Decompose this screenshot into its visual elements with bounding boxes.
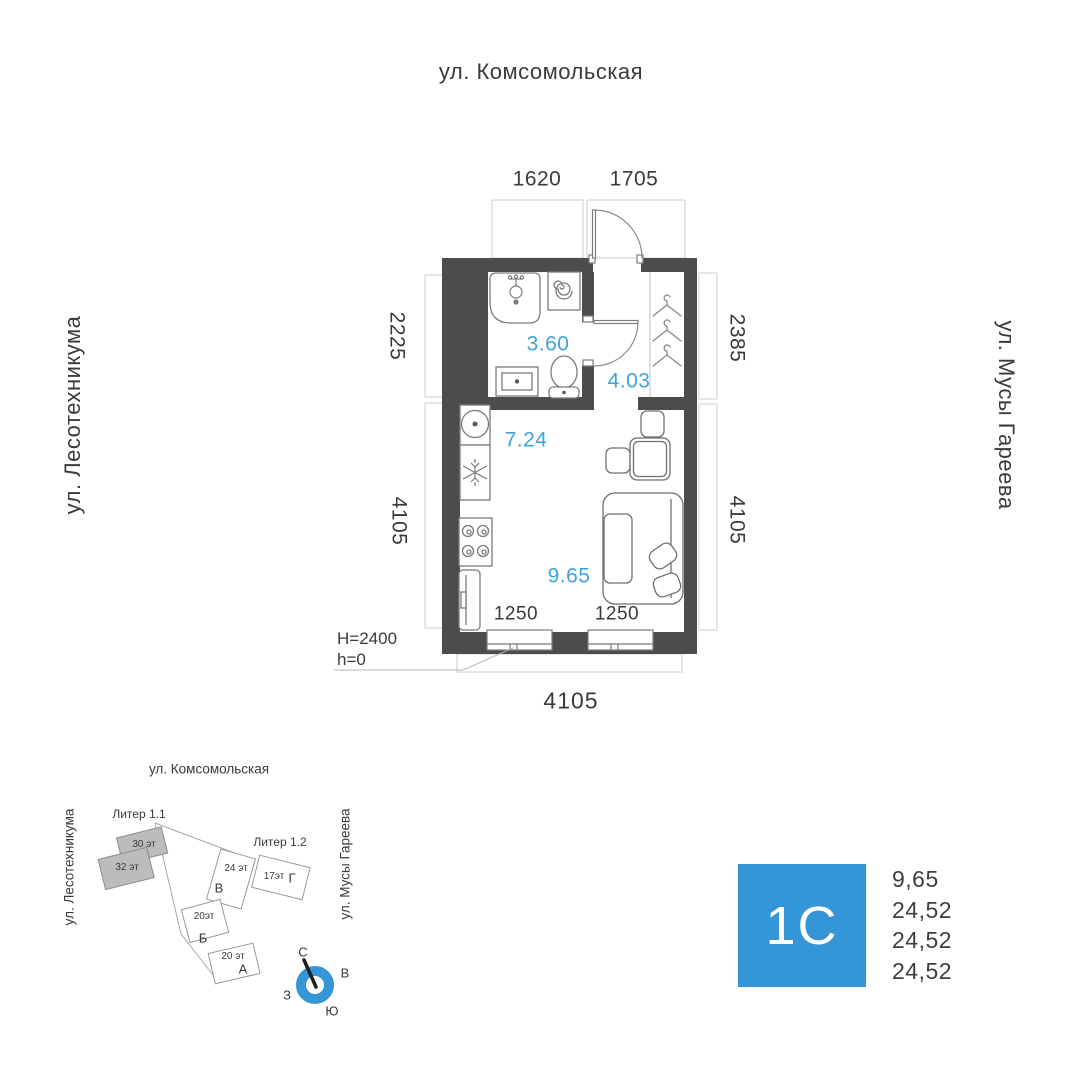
chair-top bbox=[641, 411, 664, 437]
building-g-letter: Г bbox=[288, 872, 295, 885]
compass-north-label: С bbox=[298, 946, 307, 959]
sitemap-street-right: ул. Мусы Гареева bbox=[338, 808, 352, 919]
unit-total-area-1: 24,52 bbox=[892, 895, 952, 926]
note-floor-level: h=0 bbox=[337, 651, 366, 668]
sofa bbox=[603, 493, 683, 604]
sitemap-buildings bbox=[98, 827, 310, 984]
toilet bbox=[549, 356, 579, 398]
compass-south-label: Ю bbox=[325, 1005, 338, 1018]
shower-tray bbox=[490, 273, 540, 323]
sitemap-liter-2: Литер 1.2 bbox=[253, 836, 306, 848]
window-2 bbox=[588, 630, 653, 650]
building-a-floors: 20 эт bbox=[221, 952, 244, 962]
dim-right-1: 2385 bbox=[727, 314, 748, 363]
unit-total-area-2: 24,52 bbox=[892, 925, 952, 956]
dim-left-2: 4105 bbox=[389, 497, 410, 546]
dim-right-2: 4105 bbox=[727, 496, 748, 545]
sitemap-street-top: ул. Комсомольская bbox=[149, 762, 269, 776]
compass-east-label: В bbox=[341, 967, 350, 980]
dining-table bbox=[606, 411, 670, 480]
compass-west-label: З bbox=[283, 989, 291, 1002]
area-kitchen: 7.24 bbox=[505, 430, 548, 451]
area-hallway: 4.03 bbox=[608, 371, 651, 392]
building-v bbox=[207, 849, 256, 909]
chair-left bbox=[606, 448, 630, 473]
unit-total-area-3: 24,52 bbox=[892, 956, 952, 987]
vanity-sink bbox=[496, 367, 538, 396]
dim-top-1: 1620 bbox=[513, 169, 562, 190]
sitemap-street-left: ул. Лесотехникума bbox=[62, 809, 76, 926]
street-label-right: ул. Мусы Гареева bbox=[995, 320, 1017, 509]
dim-top-2: 1705 bbox=[610, 169, 659, 190]
area-living: 9.65 bbox=[548, 566, 591, 587]
area-bathroom: 3.60 bbox=[527, 334, 570, 355]
building-v-floors: 24 эт bbox=[224, 864, 247, 874]
building-a-letter: А bbox=[239, 963, 248, 976]
street-label-top: ул. Комсомольская bbox=[439, 61, 643, 83]
sitemap-liter-1: Литер 1.1 bbox=[112, 808, 165, 820]
washing-machine bbox=[548, 272, 580, 310]
building-v-letter: В bbox=[215, 882, 224, 895]
kitchen-sink bbox=[460, 405, 490, 445]
hanger-icons bbox=[653, 295, 681, 366]
building-a bbox=[208, 943, 260, 984]
floor-plan-page: ул. Комсомольская ул. Лесотехникума ул. … bbox=[0, 0, 1080, 1080]
kitchen-cabinet bbox=[459, 570, 480, 630]
building-g-floors: 17эт bbox=[264, 872, 285, 882]
dim-left-1: 2225 bbox=[387, 312, 408, 361]
unit-type-badge: 1С bbox=[738, 864, 866, 987]
unit-type-label: 1С bbox=[765, 895, 838, 957]
dim-window-1: 1250 bbox=[494, 605, 538, 624]
dim-bottom: 4105 bbox=[543, 690, 598, 713]
entrance-door bbox=[589, 210, 643, 263]
compass-icon bbox=[301, 960, 329, 999]
window-1 bbox=[487, 630, 552, 650]
building-b-floors: 20эт bbox=[194, 912, 215, 922]
building-32-floors: 32 эт bbox=[115, 863, 138, 873]
street-label-left: ул. Лесотехникума bbox=[62, 316, 84, 515]
unit-area-values: 9,65 24,52 24,52 24,52 bbox=[892, 864, 952, 986]
dim-window-2: 1250 bbox=[595, 605, 639, 624]
note-ceiling-height: H=2400 bbox=[337, 630, 397, 647]
building-30-floors: 30 эт bbox=[132, 840, 155, 850]
stove bbox=[459, 518, 492, 566]
bathroom-door bbox=[583, 316, 638, 366]
unit-living-area: 9,65 bbox=[892, 864, 952, 895]
building-b-letter: Б bbox=[199, 932, 208, 945]
fridge bbox=[460, 445, 490, 500]
